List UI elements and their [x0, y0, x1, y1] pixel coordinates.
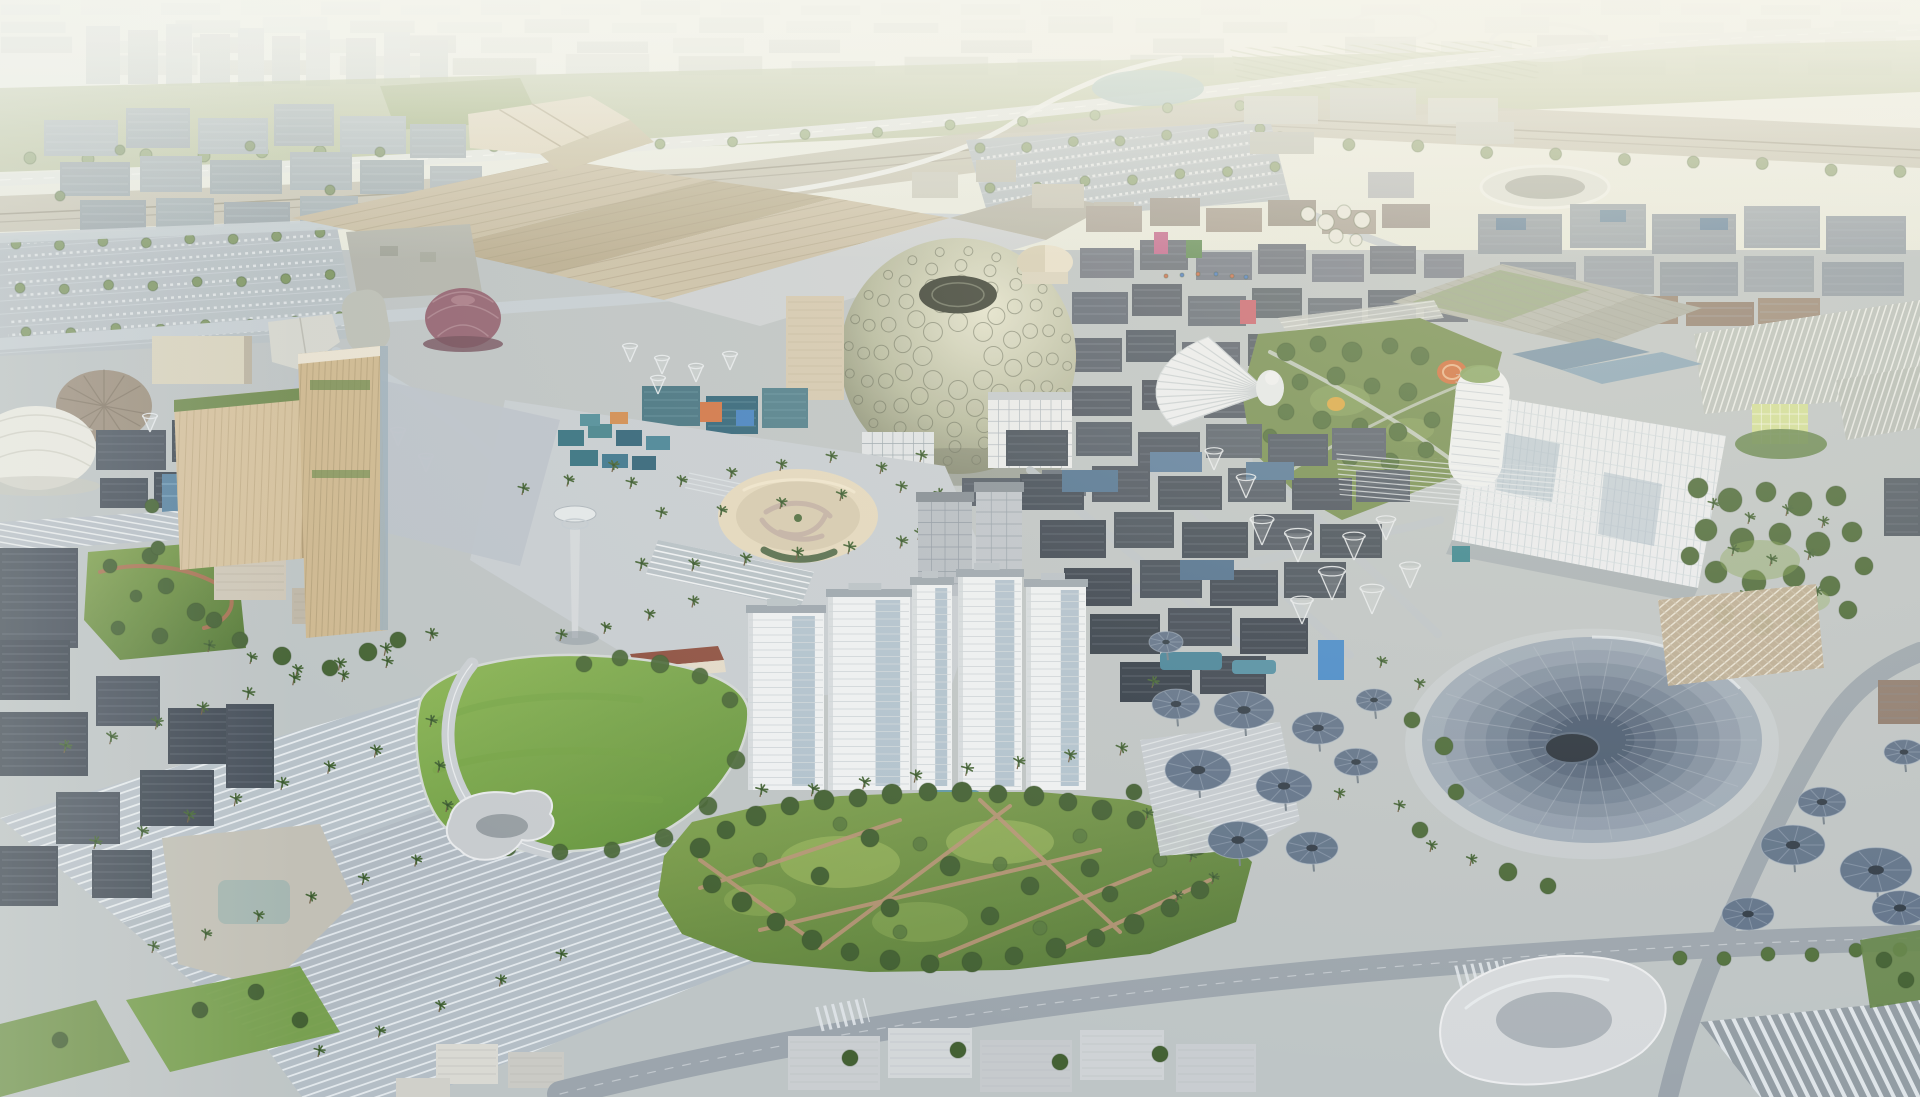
expo-city-aerial-render — [0, 0, 1920, 1097]
atmosphere — [0, 0, 1920, 1097]
scene-canvas — [0, 0, 1920, 1097]
